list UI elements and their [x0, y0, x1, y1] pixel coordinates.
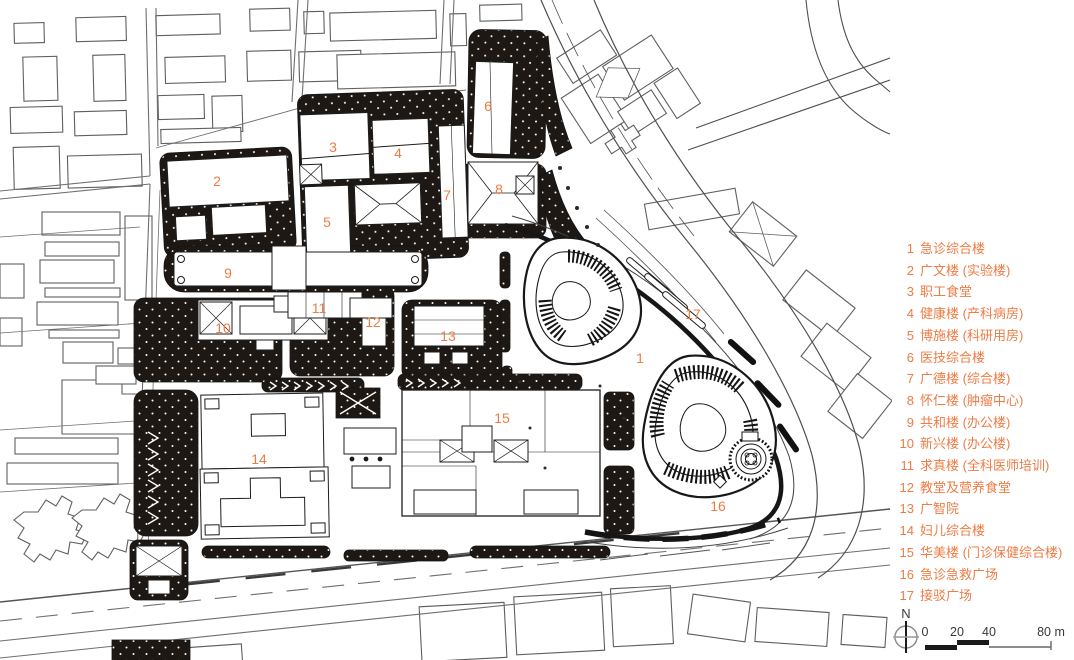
legend-item-number: 10 [898, 433, 914, 455]
legend-item-7: 7广德楼 (综合楼) [898, 368, 1072, 390]
site-plan-map [0, 0, 892, 660]
legend-item-number: 8 [898, 390, 914, 412]
legend-item-3: 3职工食堂 [898, 281, 1072, 303]
legend-item-5: 5博施楼 (科研用房) [898, 325, 1072, 347]
legend-item-number: 3 [898, 281, 914, 303]
legend-item-number: 12 [898, 477, 914, 499]
scale-tick-80: 80 m [1037, 625, 1065, 639]
legend-item-number: 7 [898, 368, 914, 390]
legend-item-14: 14妇儿综合楼 [898, 520, 1072, 542]
legend-item-name: 博施楼 (科研用房) [920, 325, 1023, 347]
legend-item-number: 6 [898, 347, 914, 369]
legend-item-name: 求真楼 (全科医师培训) [920, 455, 1049, 477]
legend-item-name: 华美楼 (门诊保健综合楼) [920, 542, 1062, 564]
legend-item-number: 11 [898, 455, 914, 477]
legend-item-number: 1 [898, 238, 914, 260]
legend-item-number: 2 [898, 260, 914, 282]
legend-list: 1急诊综合楼2广文楼 (实验楼)3职工食堂4健康楼 (产科病房)5博施楼 (科研… [898, 238, 1072, 607]
legend-item-12: 12教堂及营养食堂 [898, 477, 1072, 499]
scale-tick-40: 40 [982, 625, 996, 639]
legend-item-name: 新兴楼 (办公楼) [920, 433, 1010, 455]
legend-item-number: 13 [898, 498, 914, 520]
legend-item-4: 4健康楼 (产科病房) [898, 303, 1072, 325]
legend-item-name: 广德楼 (综合楼) [920, 368, 1010, 390]
legend-item-name: 健康楼 (产科病房) [920, 303, 1023, 325]
legend-item-number: 5 [898, 325, 914, 347]
legend-item-9: 9共和楼 (办公楼) [898, 412, 1072, 434]
scale-tick-20: 20 [950, 625, 964, 639]
legend-item-number: 14 [898, 520, 914, 542]
legend-item-number: 15 [898, 542, 914, 564]
legend-item-13: 13广智院 [898, 498, 1072, 520]
legend-item-number: 4 [898, 303, 914, 325]
legend-item-1: 1急诊综合楼 [898, 238, 1072, 260]
legend-item-8: 8怀仁楼 (肿瘤中心) [898, 390, 1072, 412]
legend-item-name: 医技综合楼 [920, 347, 985, 369]
north-label: N [901, 606, 910, 621]
legend-item-10: 10新兴楼 (办公楼) [898, 433, 1072, 455]
scale-bar: 0 20 40 80 m [922, 625, 1065, 650]
legend-item-name: 共和楼 (办公楼) [920, 412, 1010, 434]
legend-item-name: 急诊急救广场 [920, 564, 998, 586]
legend-item-6: 6医技综合楼 [898, 347, 1072, 369]
legend-item-number: 16 [898, 564, 914, 586]
legend-item-name: 妇儿综合楼 [920, 520, 985, 542]
site-plan-page: 1234567891011121314151617 1急诊综合楼2广文楼 (实验… [0, 0, 1074, 660]
legend-item-name: 广智院 [920, 498, 959, 520]
legend-item-2: 2广文楼 (实验楼) [898, 260, 1072, 282]
legend-item-name: 职工食堂 [920, 281, 972, 303]
scale-tick-0: 0 [922, 625, 929, 639]
legend-item-name: 广文楼 (实验楼) [920, 260, 1010, 282]
legend-item-name: 教堂及营养食堂 [920, 477, 1011, 499]
compass-and-scale: N 0 20 40 80 m [891, 604, 1074, 660]
legend-item-name: 怀仁楼 (肿瘤中心) [920, 390, 1023, 412]
legend-item-number: 9 [898, 412, 914, 434]
triangle-building-upper [524, 238, 641, 365]
legend-item-15: 15华美楼 (门诊保健综合楼) [898, 542, 1072, 564]
legend-item-name: 急诊综合楼 [920, 238, 985, 260]
legend-item-11: 11求真楼 (全科医师培训) [898, 455, 1072, 477]
legend-item-16: 16急诊急救广场 [898, 564, 1072, 586]
north-arrow-icon: N [893, 606, 919, 653]
